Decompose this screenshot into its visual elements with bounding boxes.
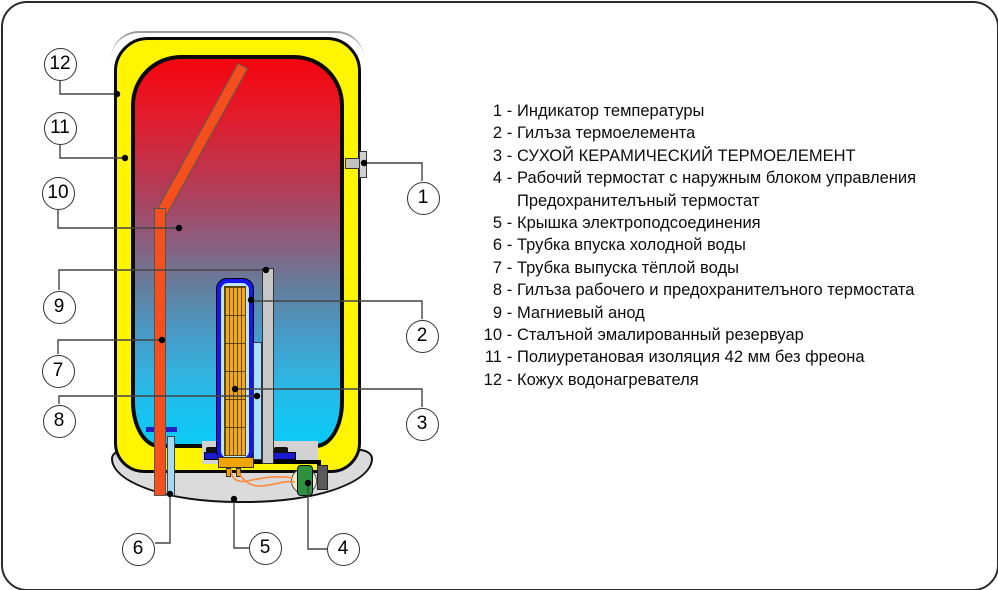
callout-9: 9	[43, 291, 76, 324]
legend-ltext: Предохранителъный термостат	[517, 190, 990, 212]
legend-lnum: 12	[480, 369, 502, 391]
legend-lnum: 10	[480, 324, 502, 346]
callout-6: 6	[122, 533, 155, 566]
legend-ltext: Крышка электроподсоединения	[517, 212, 990, 234]
callout-2-label: 2	[417, 325, 428, 347]
legend-item: 3-СУХОЙ КЕРАМИЧЕСКИЙ ТЕРМОЕЛЕМЕНТ	[480, 145, 990, 167]
legend-item: 11-Полиуретановая изоляция 42 мм без фре…	[480, 346, 990, 368]
callout-9-label: 9	[54, 296, 65, 318]
legend-item: 9-Магниевый анод	[480, 302, 990, 324]
legend-lnum: 8	[480, 279, 502, 301]
legend-lsep: -	[502, 212, 517, 234]
callout-3: 3	[406, 408, 439, 441]
magnesium-anode	[262, 268, 274, 464]
legend-ltext: Гилъза термоелемента	[517, 122, 990, 144]
thermostat-sleeve	[253, 342, 262, 460]
callout-6-label: 6	[133, 538, 144, 560]
legend-lnum: 11	[480, 346, 502, 368]
legend-lsep: -	[502, 100, 517, 122]
callout-3-label: 3	[417, 413, 428, 435]
callout-11: 11	[44, 112, 77, 145]
legend-lsep: -	[502, 257, 517, 279]
element-terminal-pin	[236, 468, 241, 477]
element-mounting-flange	[218, 457, 254, 468]
callout-8-label: 8	[54, 410, 65, 432]
callout-2: 2	[406, 320, 439, 353]
legend-ltext: Трубка выпуска тёплой воды	[517, 257, 990, 279]
legend-item: Предохранителъный термостат	[480, 190, 990, 212]
legend-ltext: Кожух водонагревателя	[517, 369, 990, 391]
callout-4: 4	[327, 533, 360, 566]
legend-item: 1-Индикатор температуры	[480, 100, 990, 122]
callout-10-label: 10	[47, 182, 68, 204]
legend-ltext: Магниевый анод	[517, 302, 990, 324]
legend-item: 5-Крышка электроподсоединения	[480, 212, 990, 234]
legend-ltext: Гилъза рабочего и предохранителъного тер…	[517, 279, 990, 301]
legend-item: 6-Трубка впуска холодной воды	[480, 234, 990, 256]
cable-gland	[317, 465, 328, 490]
legend-lnum: 6	[480, 234, 502, 256]
callout-1-label: 1	[418, 187, 429, 209]
legend-lsep: -	[502, 122, 517, 144]
legend-lnum	[480, 190, 502, 212]
legend: 1-Индикатор температуры2-Гилъза термоеле…	[480, 100, 990, 391]
legend-ltext: Трубка впуска холодной воды	[517, 234, 990, 256]
callout-5: 5	[249, 532, 282, 565]
callout-7: 7	[42, 355, 75, 388]
water-heater-cutaway-diagram: 1 2 3 4 5 6 7 8 9 10 11 12 1-Индикатор т…	[0, 0, 998, 590]
legend-item: 12-Кожух водонагревателя	[480, 369, 990, 391]
callout-11-label: 11	[50, 117, 70, 139]
callout-1: 1	[407, 182, 440, 215]
legend-ltext: Сталъной эмалированный резервуар	[517, 324, 990, 346]
legend-item: 7-Трубка выпуска тёплой воды	[480, 257, 990, 279]
legend-lnum: 3	[480, 145, 502, 167]
legend-item: 4-Рабочий термостат с наружным блоком уп…	[480, 167, 990, 189]
callout-4-label: 4	[338, 538, 349, 560]
legend-lnum: 9	[480, 302, 502, 324]
flange-bolt-right	[274, 447, 288, 453]
temperature-indicator	[359, 151, 367, 178]
cold-water-inlet-pipe	[167, 436, 175, 496]
legend-lnum: 5	[480, 212, 502, 234]
legend-ltext: Индикатор температуры	[517, 100, 990, 122]
legend-lsep: -	[502, 369, 517, 391]
callout-12: 12	[44, 48, 77, 81]
legend-lsep	[502, 190, 517, 212]
legend-lsep: -	[502, 167, 517, 189]
callout-10: 10	[42, 177, 75, 210]
legend-lsep: -	[502, 302, 517, 324]
callout-5-label: 5	[260, 537, 271, 559]
legend-item: 10-Сталъной эмалированный резервуар	[480, 324, 990, 346]
legend-lsep: -	[502, 279, 517, 301]
legend-lnum: 4	[480, 167, 502, 189]
legend-ltext: Рабочий термостат с наружным блоком упра…	[517, 167, 990, 189]
legend-lsep: -	[502, 346, 517, 368]
callout-12-label: 12	[49, 53, 70, 75]
legend-ltext: Полиуретановая изоляция 42 мм без фреона	[517, 346, 990, 368]
legend-item: 8-Гилъза рабочего и предохранителъного т…	[480, 279, 990, 301]
legend-lnum: 2	[480, 122, 502, 144]
legend-lnum: 7	[480, 257, 502, 279]
callout-7-label: 7	[53, 360, 64, 382]
callout-8: 8	[43, 405, 76, 438]
hot-water-outlet-pipe	[154, 208, 166, 496]
legend-ltext: СУХОЙ КЕРАМИЧЕСКИЙ ТЕРМОЕЛЕМЕНТ	[517, 145, 990, 167]
ceramic-heating-element	[224, 286, 246, 456]
element-terminal-pin	[226, 468, 231, 477]
legend-lsep: -	[502, 234, 517, 256]
thermostat-body	[297, 465, 313, 496]
legend-lsep: -	[502, 145, 517, 167]
legend-lsep: -	[502, 324, 517, 346]
legend-item: 2-Гилъза термоелемента	[480, 122, 990, 144]
legend-lnum: 1	[480, 100, 502, 122]
